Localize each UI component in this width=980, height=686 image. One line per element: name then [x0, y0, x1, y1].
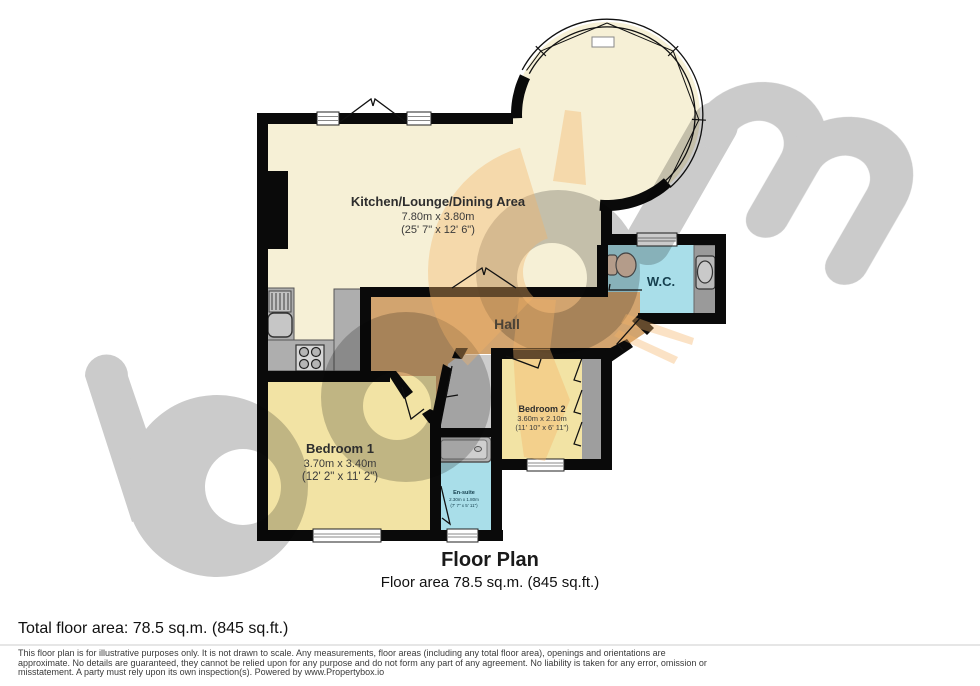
svg-text:W.C.: W.C. [647, 274, 675, 289]
svg-text:(11' 10" x 6' 11"): (11' 10" x 6' 11") [515, 423, 569, 432]
svg-text:2.30m x 1.80m: 2.30m x 1.80m [449, 497, 479, 502]
svg-text:Kitchen/Lounge/Dining Area: Kitchen/Lounge/Dining Area [351, 194, 526, 209]
svg-text:(25' 7" x 12' 6"): (25' 7" x 12' 6") [401, 224, 475, 236]
svg-text:3.60m x 2.10m: 3.60m x 2.10m [517, 414, 567, 423]
svg-text:Floor Plan: Floor Plan [441, 549, 539, 571]
svg-text:Total floor area: 78.5 sq.m. (: Total floor area: 78.5 sq.m. (845 sq.ft.… [18, 620, 288, 637]
svg-text:Hall: Hall [494, 316, 520, 332]
svg-text:This floor plan is for illustr: This floor plan is for illustrative purp… [18, 648, 666, 658]
svg-text:Floor area 78.5 sq.m. (845 sq.: Floor area 78.5 sq.m. (845 sq.ft.) [381, 574, 599, 591]
svg-text:misstatement. A party must rel: misstatement. A party must rely upon its… [18, 667, 384, 677]
svg-text:(7' 7" x 5' 11"): (7' 7" x 5' 11") [450, 503, 478, 508]
svg-text:Bedroom 1: Bedroom 1 [306, 441, 374, 456]
svg-text:Bedroom 2: Bedroom 2 [518, 404, 565, 414]
svg-text:3.70m x 3.40m: 3.70m x 3.40m [304, 458, 377, 470]
svg-text:(12' 2" x 11' 2"): (12' 2" x 11' 2") [302, 471, 378, 483]
svg-text:7.80m x 3.80m: 7.80m x 3.80m [402, 211, 475, 223]
svg-text:En-suite: En-suite [453, 490, 475, 496]
